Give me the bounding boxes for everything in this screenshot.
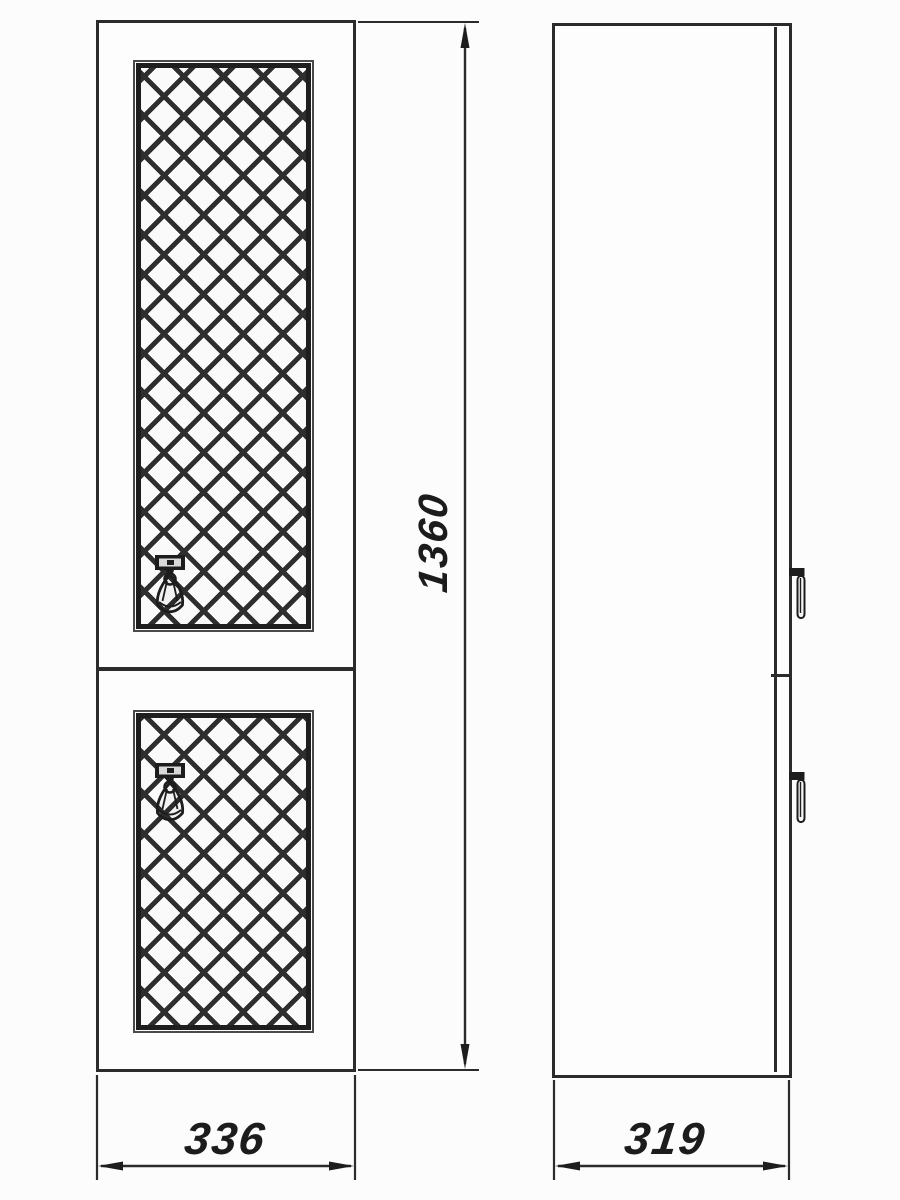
dimension-height-value: 1360 [413, 490, 454, 594]
dimension-side-depth-value: 319 [623, 1116, 710, 1161]
dimension-side-depth-label: 319 [596, 1116, 736, 1162]
dimension-front-width-label: 336 [156, 1116, 296, 1162]
dimension-height-label: 1360 [413, 464, 463, 620]
dimension-front-width-value: 336 [183, 1116, 270, 1161]
technical-drawing-canvas: 1360 336 319 [0, 0, 900, 1200]
